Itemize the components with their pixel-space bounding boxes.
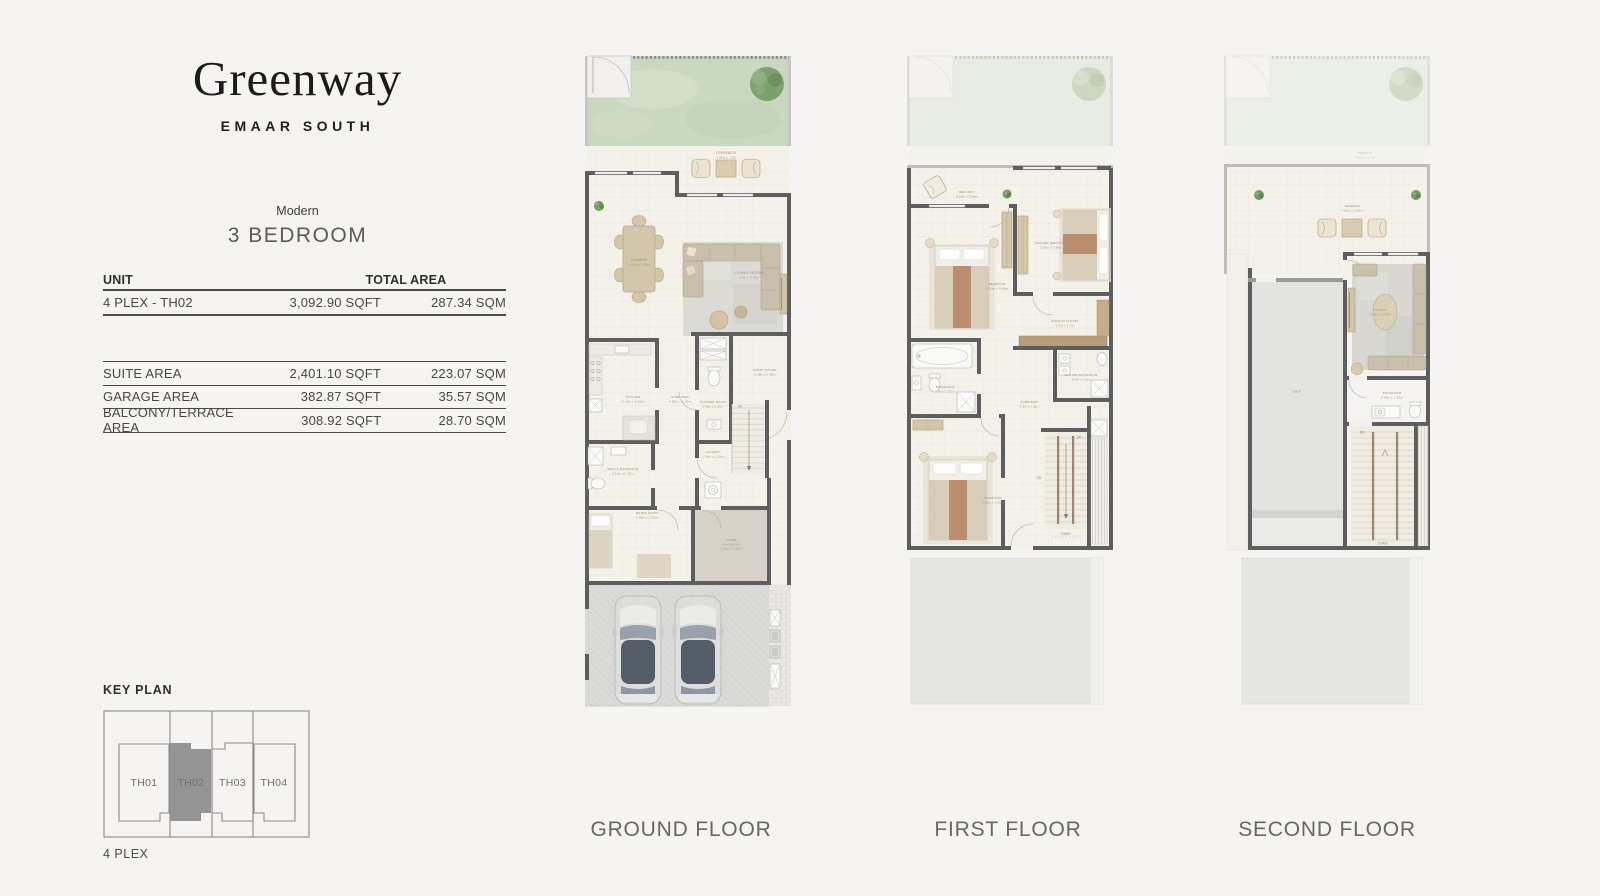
utility-boxes	[770, 610, 780, 688]
table-row: SUITE AREA 2,401.10 SQFT 223.07 SQM	[103, 362, 506, 386]
stair-label: STAIR	[1061, 532, 1071, 536]
svg-text:2.40m x 1.90m: 2.40m x 1.90m	[754, 373, 776, 377]
svg-text:2.28m x 1.00m: 2.28m x 1.00m	[702, 405, 724, 409]
svg-text:2.30m x 2.10m: 2.30m x 2.10m	[720, 547, 742, 551]
second-floor-drawing: TERRACE 3.50m x 1.50 TERRACE 7.35m x 2.6…	[1222, 54, 1432, 708]
area-table: UNIT TOTAL AREA 4 PLEX - TH02 3,092.90 S…	[103, 270, 506, 316]
row-sqft: 382.87 SQFT	[233, 389, 381, 404]
dining-label: DINING	[631, 257, 647, 262]
table-row: 4 PLEX - TH02 3,092.90 SQFT 287.34 SQM	[103, 291, 506, 316]
master-bathroom-label: MASTER BATHROOM	[1064, 373, 1097, 377]
coffee-table	[710, 311, 728, 329]
svg-text:2.6m x 1.8m: 2.6m x 1.8m	[1020, 405, 1039, 409]
stair-dn-label: DN	[1360, 431, 1365, 435]
keyplan-label-th04: TH04	[261, 777, 288, 789]
laundry-label: LAUNDRY	[705, 450, 721, 454]
ghost-tree-icon	[1072, 67, 1106, 101]
svg-text:5.4m x 3.30m: 5.4m x 3.30m	[739, 276, 759, 280]
rug	[637, 554, 671, 578]
area-breakdown-table: SUITE AREA 2,401.10 SQFT 223.07 SQM GARA…	[103, 361, 506, 433]
entry-foyer-label: ENTRY FOYER	[753, 368, 776, 372]
maids-bathroom-label: MAID'S BATHROOM	[608, 467, 639, 471]
maids-room-label: MAID'S ROOM	[636, 511, 659, 515]
entrance-gate	[587, 56, 631, 98]
svg-text:2.80m x 2.10m: 2.80m x 2.10m	[636, 516, 658, 520]
svg-text:2.5m x 1.7m: 2.5m x 1.7m	[1056, 324, 1075, 328]
tv-unit	[780, 274, 787, 314]
keyplan-diagram: TH01 TH02 TH03 TH04	[103, 710, 310, 840]
bathroom-fixtures	[1372, 402, 1421, 418]
second-floor-plan: TERRACE 3.50m x 1.50 TERRACE 7.35m x 2.6…	[1222, 54, 1432, 708]
svg-text:3.50m x 3.90m: 3.50m x 3.90m	[1369, 313, 1391, 317]
mep-label: MEP	[1293, 390, 1302, 394]
svg-text:3.50m x 1.50: 3.50m x 1.50	[716, 156, 735, 160]
lounge-label: LOUNGE	[1373, 308, 1387, 312]
svg-text:2.60m x 1.90m: 2.60m x 1.90m	[1381, 396, 1403, 400]
bathtub-icon	[912, 344, 972, 368]
stair-dn-label: DN	[1037, 476, 1042, 480]
brochure-page: Greenway EMAAR SOUTH Modern 3 BEDROOM UN…	[0, 0, 1600, 896]
ground-floor-label: GROUND FLOOR	[576, 818, 786, 842]
row-sqft: 2,401.10 SQFT	[233, 366, 381, 381]
svg-text:2.65m x 2.0m: 2.65m x 2.0m	[935, 390, 955, 394]
corridor-label: CORRIDOR	[1020, 400, 1038, 404]
ac-ledge	[1091, 438, 1107, 544]
brand-subtitle: EMAAR SOUTH	[100, 118, 495, 134]
bed	[926, 239, 999, 331]
terrace-furniture	[692, 160, 760, 178]
svg-text:2.5m x 1.6m: 2.5m x 1.6m	[1072, 378, 1091, 382]
stairs: DN STAIR	[1351, 426, 1414, 547]
washer-icon	[705, 482, 721, 498]
plant-icon	[1003, 190, 1012, 199]
unit-style: Modern	[100, 204, 495, 218]
bathroom-label: BATHROOM	[1383, 391, 1402, 395]
plant-icon	[1254, 190, 1264, 200]
car-icon	[613, 596, 664, 704]
row-label: GARAGE AREA	[103, 389, 233, 404]
lounge-furniture	[1348, 264, 1426, 375]
row-label: BALCONY/TERRACE AREA	[103, 405, 234, 435]
maid-bed	[589, 514, 612, 568]
closet-shelf	[1019, 336, 1107, 347]
bedroom-label: BEDROOM	[989, 282, 1006, 286]
table-row: BALCONY/TERRACE AREA 308.92 SQFT 28.70 S…	[103, 409, 506, 433]
first-floor-drawing: BALCONY 3.20m x 1.60m BEDROOM 3.50m x 3.…	[905, 54, 1115, 708]
unit-label: 4 PLEX - TH02	[103, 295, 233, 310]
area-table-header: UNIT TOTAL AREA	[103, 270, 506, 291]
plant-icon	[594, 201, 604, 211]
ghost-garden	[907, 56, 1113, 168]
svg-text:7.35m x 2.60m: 7.35m x 2.60m	[1341, 209, 1363, 213]
living-room-label: LIVING ROOM	[734, 270, 763, 275]
svg-text:1.50m x 1.20m: 1.50m x 1.20m	[702, 455, 724, 459]
row-sqm: 35.57 SQM	[381, 389, 506, 404]
svg-text:3.50m x 1.50: 3.50m x 1.50	[1355, 155, 1374, 159]
terrace-label: TERRACE	[1344, 204, 1360, 208]
tv-unit	[1348, 288, 1355, 332]
ghost-garden: TERRACE 3.50m x 1.50	[1224, 56, 1430, 166]
second-floor-label: SECOND FLOOR	[1222, 818, 1432, 842]
col-unit: UNIT	[103, 273, 306, 287]
car-icon	[673, 596, 724, 704]
ghost-garage	[911, 558, 1103, 704]
svg-text:3.50m x 3.30m: 3.50m x 3.30m	[986, 287, 1008, 291]
svg-text:3.10m x 2.10m: 3.10m x 2.10m	[622, 400, 644, 404]
keyplan-label-th02: TH02	[178, 777, 205, 789]
row-sqm: 223.07 SQM	[381, 366, 506, 381]
powder-room-label: POWDER ROOM	[700, 400, 726, 404]
mep-room: MEP	[1252, 282, 1343, 546]
master-bedroom-label: MASTER BEDROOM	[1035, 241, 1067, 245]
plant-icon	[1411, 190, 1421, 200]
first-floor-label: FIRST FLOOR	[903, 818, 1113, 842]
unit-type: 3 BEDROOM	[100, 224, 495, 248]
keyplan-caption: 4 PLEX	[103, 847, 148, 861]
living-room-furniture	[683, 242, 787, 336]
svg-text:2.10m x 1.20m: 2.10m x 1.20m	[612, 472, 634, 476]
keyplan-label-th01: TH01	[131, 777, 158, 789]
bathroom-label: BATHROOM	[936, 385, 955, 389]
svg-text:4.15m x 3.30m: 4.15m x 3.30m	[982, 501, 1004, 505]
brand-logo: Greenway	[100, 50, 495, 107]
terrace-furniture	[1318, 219, 1386, 237]
svg-text:3.80m X 3.80m: 3.80m X 3.80m	[1040, 246, 1063, 250]
col-total-area: TOTAL AREA	[306, 273, 506, 287]
ghost-tree-icon	[1389, 67, 1423, 101]
ac-ledge	[1418, 426, 1428, 546]
walk-in-closet-label: WALK-IN CLOSET	[1051, 319, 1079, 323]
stair-label: STAIR	[1378, 542, 1388, 546]
toilet-icon	[1410, 404, 1421, 418]
garage	[585, 585, 791, 706]
tree-icon	[750, 67, 784, 101]
first-floor-plan: BALCONY 3.20m x 1.60m BEDROOM 3.50m x 3.…	[905, 54, 1115, 708]
ground-floor-drawing: TERRACE 3.50m x 1.50	[583, 54, 793, 708]
row-sqm: 28.70 SQM	[381, 413, 506, 428]
stairs: UP	[732, 404, 765, 474]
row-label: SUITE AREA	[103, 366, 233, 381]
ground-floor-plan: TERRACE 3.50m x 1.50	[583, 54, 793, 708]
kitchen-label: KITCHEN	[626, 395, 640, 399]
unit-sqft: 3,092.90 SQFT	[233, 295, 381, 310]
ghost-garage	[1242, 558, 1422, 704]
garden	[585, 56, 791, 146]
stair-up-label: UP	[1077, 436, 1081, 440]
keyplan-label-th03: TH03	[219, 777, 246, 789]
terrace-label: TERRACE	[716, 150, 737, 155]
balcony-label: BALCONY	[959, 190, 975, 194]
bedroom-label: BEDROOM	[985, 496, 1002, 500]
toilet-icon	[708, 367, 720, 386]
svg-text:4.20m x 3.30m: 4.20m x 3.30m	[628, 263, 650, 267]
keyplan-title: KEY PLAN	[103, 683, 172, 697]
row-sqft: 308.92 SQFT	[234, 413, 382, 428]
svg-text:4.80m x 1.10m: 4.80m x 1.10m	[669, 400, 691, 404]
stair-up-label: UP	[738, 405, 742, 409]
svg-text:3.20m x 1.60m: 3.20m x 1.60m	[956, 195, 978, 199]
unit-sqm: 287.34 SQM	[381, 295, 506, 310]
